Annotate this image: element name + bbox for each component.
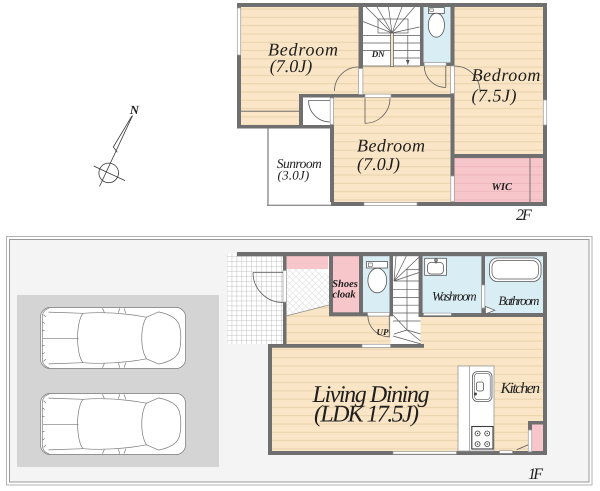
svg-text:Kitchen: Kitchen xyxy=(500,380,541,397)
svg-text:(7.5J): (7.5J) xyxy=(472,86,517,106)
svg-text:WIC: WIC xyxy=(492,182,513,193)
svg-text:Washroom: Washroom xyxy=(432,288,477,303)
svg-text:Shoes: Shoes xyxy=(332,279,358,290)
svg-text:DN: DN xyxy=(371,49,385,59)
svg-text:(3.0J): (3.0J) xyxy=(278,168,310,183)
svg-text:(LDK 17.5J): (LDK 17.5J) xyxy=(314,402,419,428)
svg-text:Bedroom: Bedroom xyxy=(472,65,541,85)
svg-text:2F: 2F xyxy=(516,207,532,224)
svg-text:1F: 1F xyxy=(528,466,543,483)
svg-text:(7.0J): (7.0J) xyxy=(270,56,313,76)
svg-text:UP: UP xyxy=(377,327,389,337)
svg-text:N: N xyxy=(129,103,140,117)
svg-text:Bedroom: Bedroom xyxy=(357,136,425,156)
svg-text:(7.0J): (7.0J) xyxy=(357,154,400,174)
svg-text:cloak: cloak xyxy=(332,290,356,301)
svg-text:Bathroom: Bathroom xyxy=(498,293,539,308)
